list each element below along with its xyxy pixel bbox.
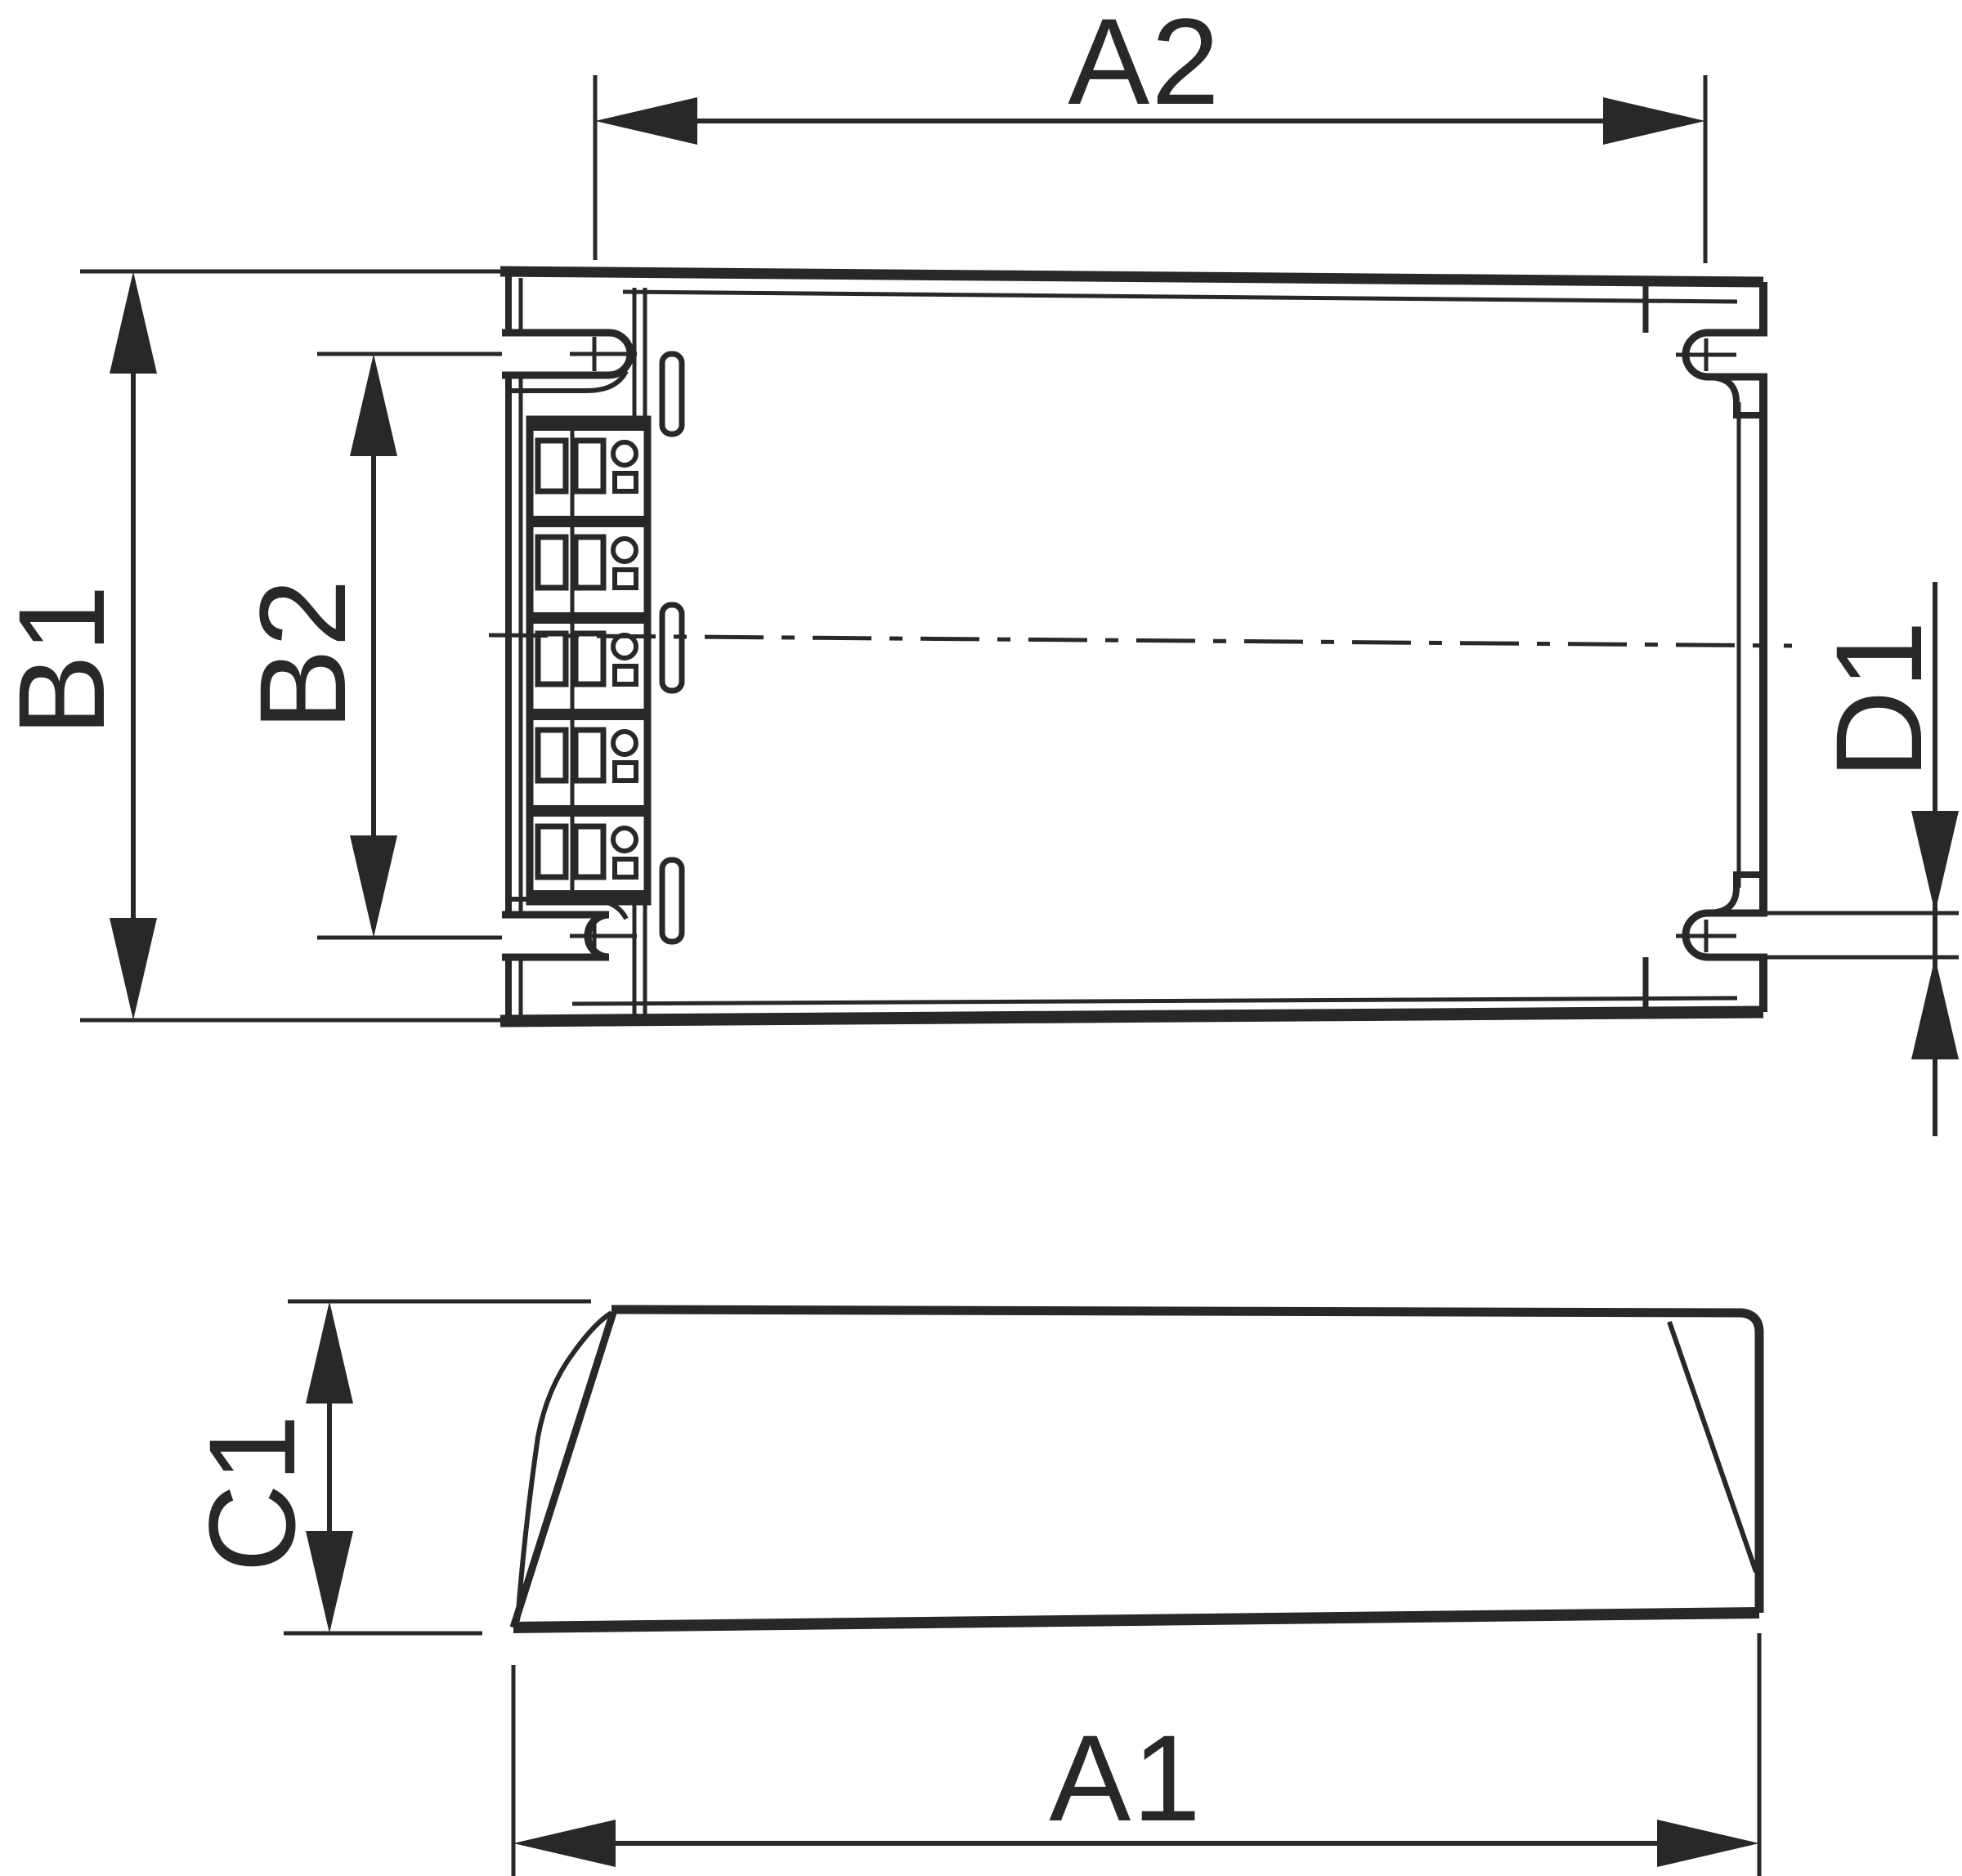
b1-label: B1 [0,583,130,736]
vent-slot-bottom [662,860,682,942]
mounting-slot-bottom-right-hook [1708,875,1763,913]
b2-label: B2 [234,577,371,730]
d1-arrowhead-top [1911,811,1959,913]
top-view: A2 B1 B2 D1 [0,0,1959,1136]
dimension-drawing-page: A2 B1 B2 D1 [0,0,1962,1876]
mounting-slots [502,285,1767,1008]
c1-label: C1 [183,1413,320,1573]
a1-arrowhead-left [513,1820,616,1867]
vent-slots [662,354,682,942]
body-top-edge [500,271,1763,282]
a1-arrowhead-right [1657,1820,1759,1867]
d1-label: D1 [1810,619,1947,779]
a2-label: A2 [1068,0,1221,130]
side-inner-taper-line [1669,1322,1756,1572]
a2-arrowhead-right [1603,97,1705,145]
side-top-right-edge [611,1310,1759,1613]
b2-arrowhead-bottom [350,835,397,938]
body-bottom-seam [572,998,1737,1004]
a2-arrowhead-left [595,97,697,145]
b1-arrowhead-top [110,271,157,374]
dimension-a1: A1 [513,1633,1759,1876]
body-bottom-edge [500,1012,1763,1021]
dimension-drawing-svg: A2 B1 B2 D1 [0,0,1962,1876]
body-top-seam [623,292,1737,302]
dimension-a2: A2 [595,0,1705,263]
terminal-block [530,419,647,902]
terminal-block-endbar [531,890,646,902]
side-view-outline [513,1310,1759,1628]
a1-label: A1 [1049,1709,1202,1847]
side-left-edge [513,1313,613,1628]
dimension-b2: B2 [234,354,502,938]
b1-arrowhead-bottom [110,918,157,1020]
d1-arrowhead-bottom [1911,957,1959,1059]
c1-arrowhead-top [306,1301,353,1404]
side-view: C1 A1 [183,1301,1759,1876]
vent-slot-top [662,354,682,434]
b2-arrowhead-top [350,354,397,456]
dimension-d1: D1 [1745,582,1959,1136]
top-view-outline [500,271,1763,1021]
side-bottom-edge [513,1613,1759,1628]
mounting-slot-top-right-hook [1708,377,1763,415]
vent-slot-middle [662,605,682,691]
